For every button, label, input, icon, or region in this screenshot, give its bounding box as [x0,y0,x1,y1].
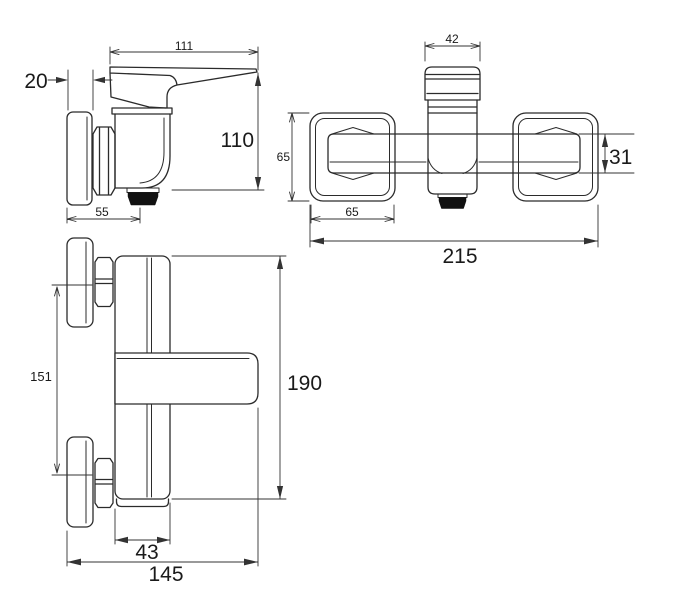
dim-handle-width-42: 42 [425,32,480,61]
dim-body-width-43: 43 [115,503,170,564]
dim-bar-height-31: 31 [579,134,634,173]
dim-label-body-width: 43 [135,541,158,564]
dim-label-bar-height: 31 [609,146,632,169]
dim-label-handle-width: 42 [445,32,459,46]
rosette-diamond-accents [332,128,577,180]
bottom-wall-plate-front [67,437,93,527]
dim-rosette-height-65: 65 [277,113,309,201]
dim-label-height: 110 [221,129,254,152]
bottom-mounting-nut-front [95,459,113,508]
technical-drawing-canvas: 111 20 110 55 4 [0,0,682,600]
wall-plate-side [67,112,92,205]
body-column-top [428,113,477,194]
wall-bar [328,134,580,173]
dim-label-depth: 55 [95,205,109,219]
dim-arrows [56,77,105,83]
aerator-side [128,193,158,206]
faucet-body-inner-contour [140,118,164,183]
handle-neck-top [428,100,477,113]
dim-label-plate-thickness: 20 [24,70,47,93]
spout-lip-front [117,499,169,507]
dim-label-overall-depth: 145 [148,563,183,586]
right-rosette-inner [519,119,593,196]
dim-label-rosette-height: 65 [277,150,291,164]
handle-knob-top [425,67,480,100]
drawing-sheet: 111 20 110 55 4 [0,0,682,600]
dim-line [288,113,309,201]
right-rosette [513,113,598,201]
lever-handle-side [110,67,257,108]
top-mounting-nut-front [95,258,113,307]
dim-depth-55: 55 [67,205,140,223]
left-rosette [310,113,395,201]
dim-height-110: 110 [172,73,264,190]
dim-label-rosette-width: 65 [345,205,359,219]
top-wall-plate-front [67,238,93,327]
dim-line [115,503,170,544]
dim-plate-thickness-20: 20 [24,70,112,110]
aerator-top [439,198,466,209]
dim-label-overall-height: 190 [287,372,322,395]
lever-handle-front [115,353,258,404]
dim-rosette-width-65: 65 [311,205,394,223]
aerator-mount-side [127,188,159,193]
dim-label-connection-spacing: 151 [30,369,52,384]
faucet-body-side [115,114,170,188]
dim-label-overall-width: 215 [442,245,477,268]
side-view: 111 20 110 55 [24,39,264,223]
handle-collar-side [112,108,172,114]
top-view: 42 65 65 215 31 [277,32,634,268]
mounting-nut-side [93,127,115,195]
dim-connection-spacing-151: 151 [30,285,92,475]
body-column-fillets [428,158,477,174]
dim-line [48,70,112,110]
left-rosette-inner [316,119,390,196]
dim-length-111: 111 [110,39,258,70]
front-view: 151 190 43 145 [30,238,322,586]
dim-label-length: 111 [175,39,194,53]
